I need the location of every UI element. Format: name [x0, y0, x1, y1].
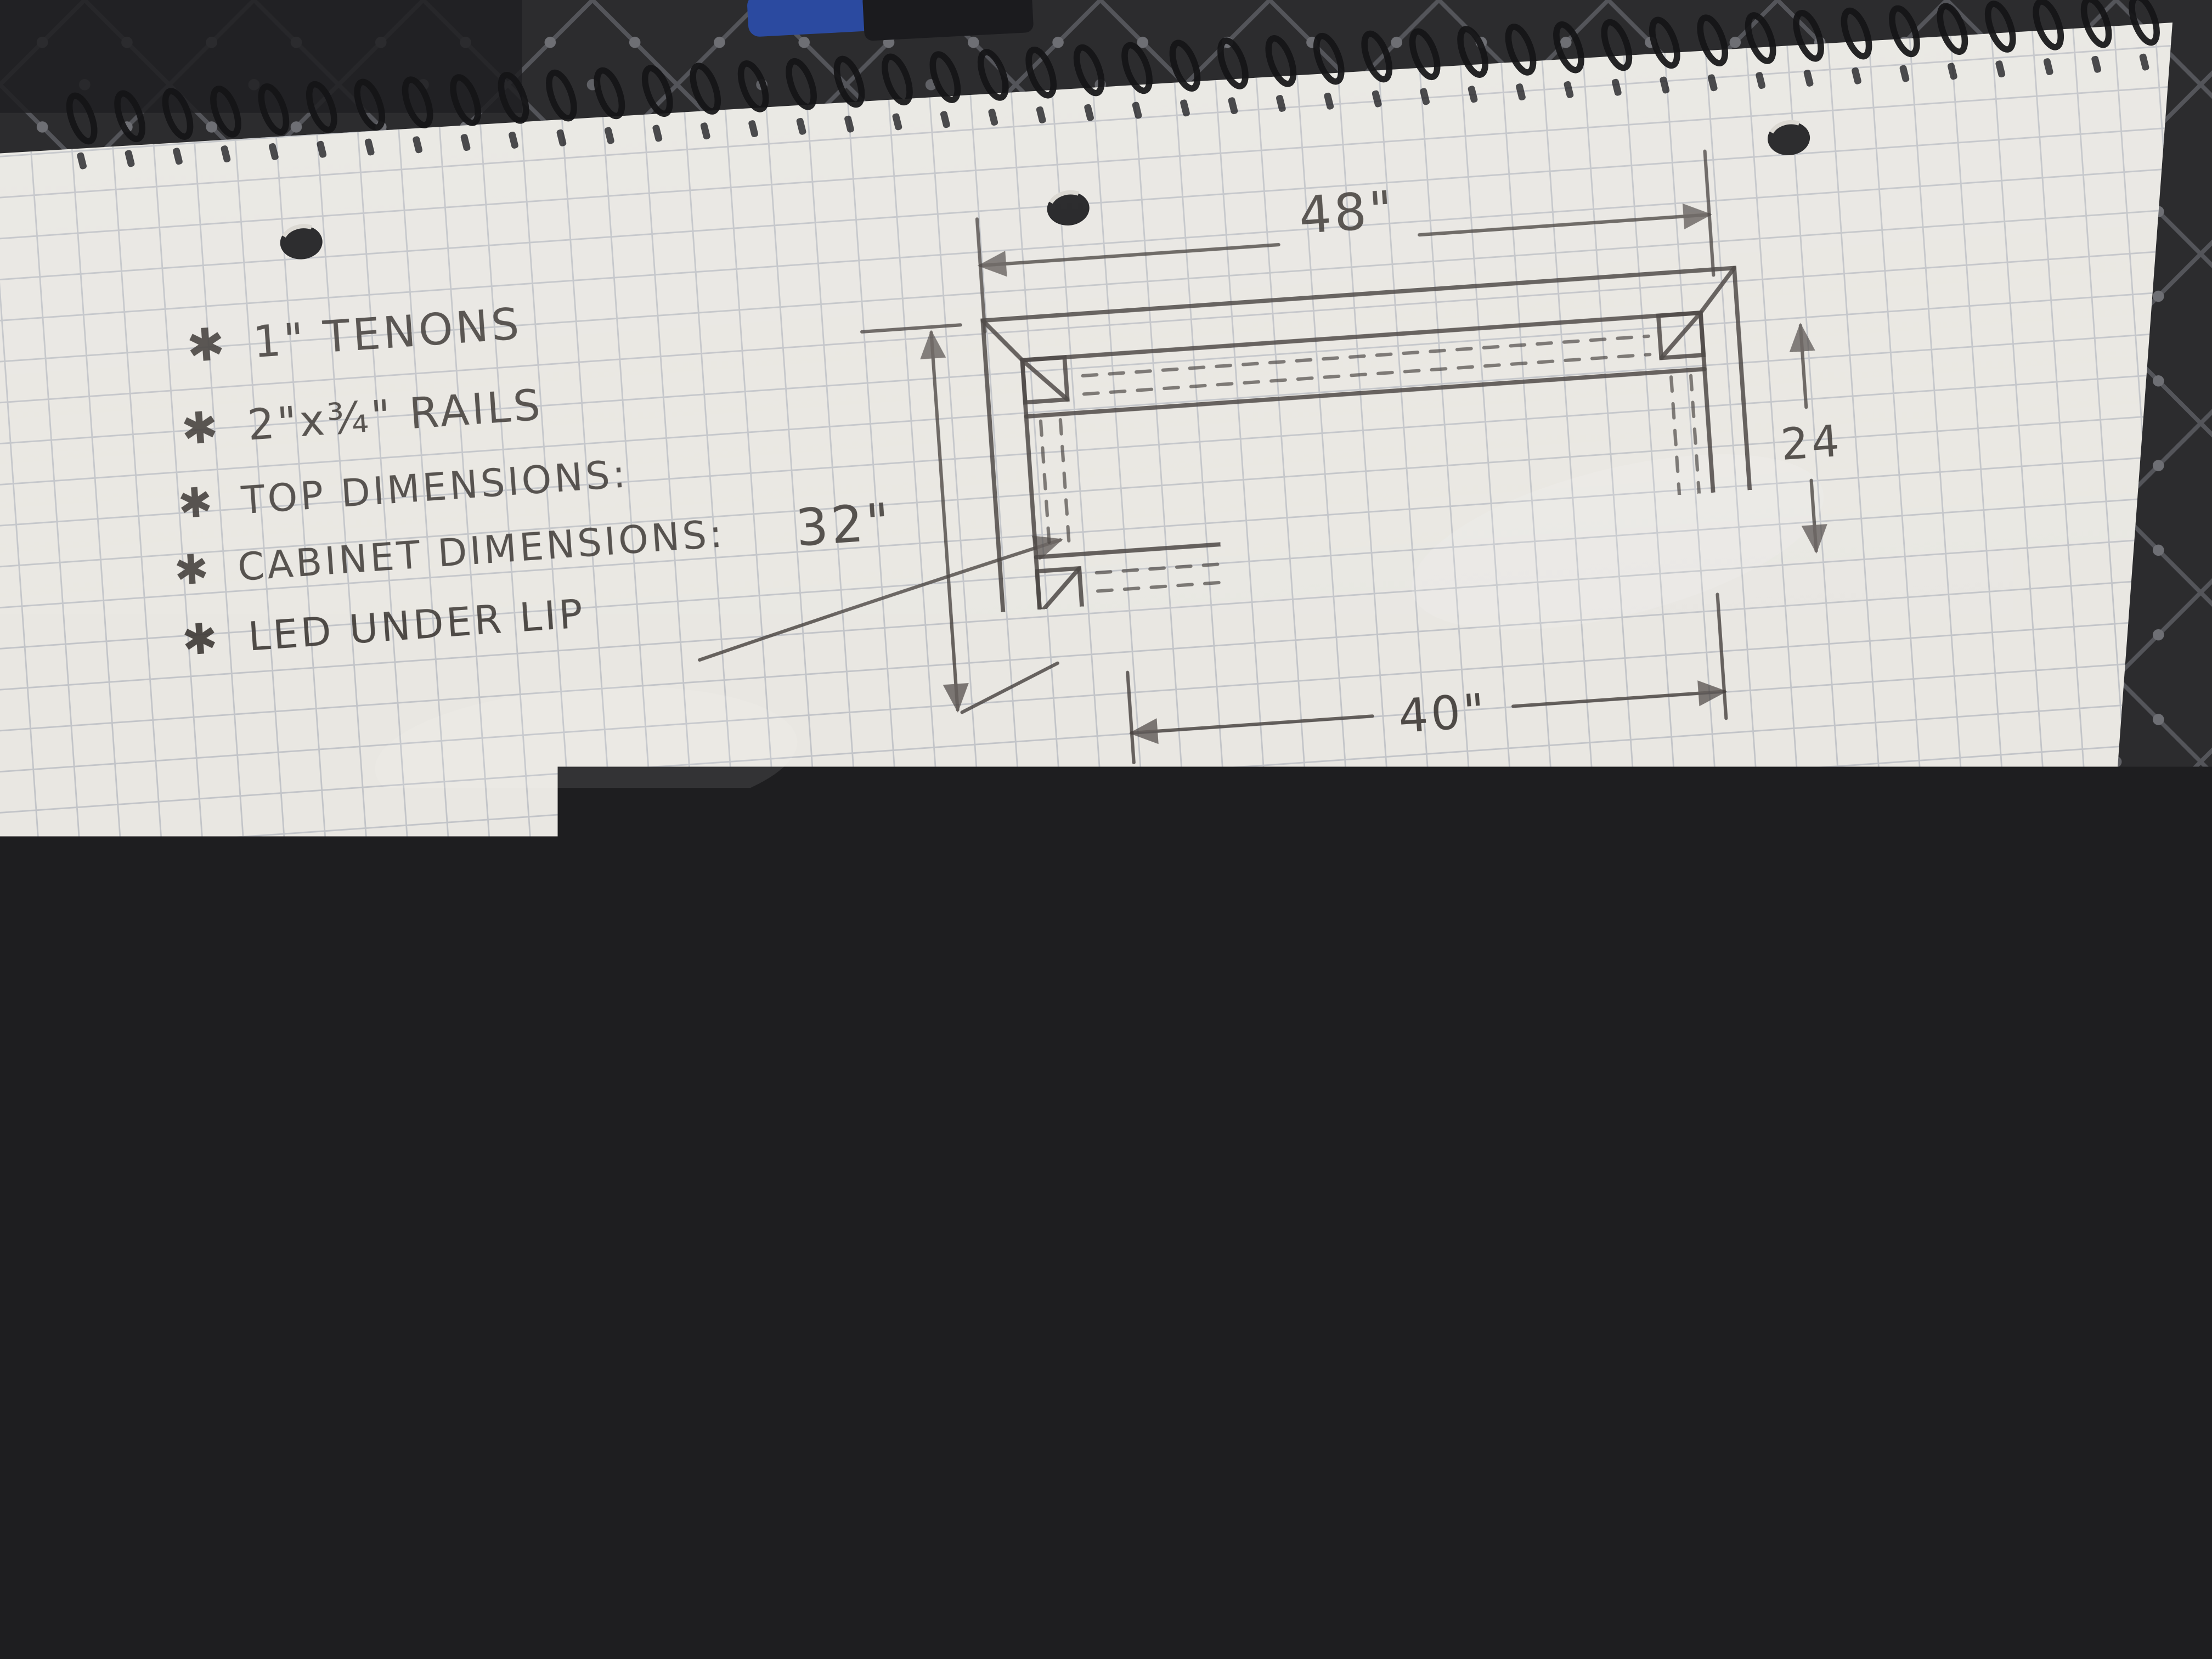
paper-shading: [0, 0, 2212, 1659]
notebook-sketch-photo: ✱ 1" TENONS ✱ 2"x¾" RAILS ✱ TOP DIMENSIO…: [0, 0, 2212, 1659]
